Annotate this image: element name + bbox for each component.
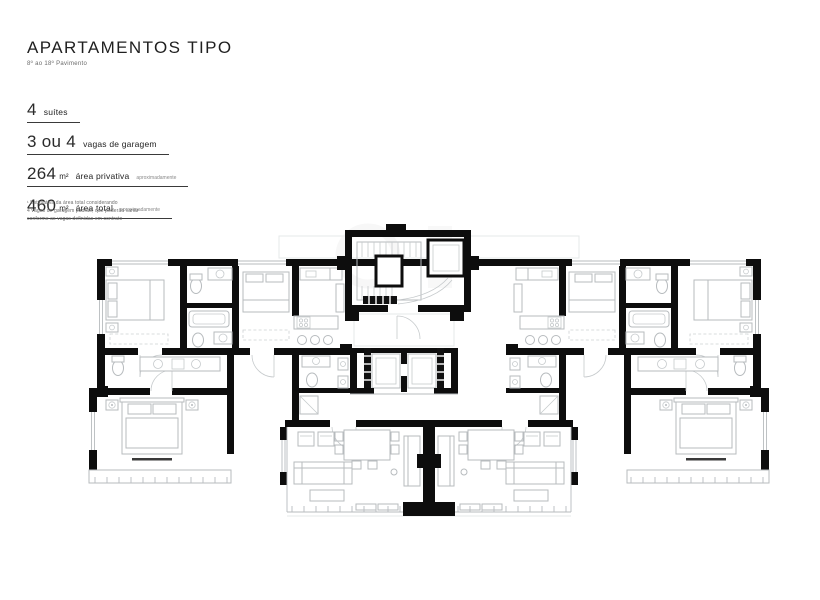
bench xyxy=(132,458,172,461)
bedroom-top-2 xyxy=(243,272,289,340)
toilet xyxy=(307,373,318,387)
elevator-lobby xyxy=(345,312,464,346)
toilet xyxy=(191,279,202,294)
service-bathroom xyxy=(300,356,348,414)
stair-core xyxy=(337,224,479,312)
apartment-right xyxy=(428,259,769,516)
toilet xyxy=(193,333,204,347)
bathroom-top-2 xyxy=(189,311,232,347)
armchair xyxy=(298,432,314,446)
living-dining xyxy=(294,430,420,510)
armchair xyxy=(318,432,334,446)
toilet xyxy=(113,361,124,376)
wardrobe xyxy=(243,330,289,340)
stool xyxy=(324,336,333,345)
wardrobe xyxy=(110,334,168,344)
bedroom-top-left xyxy=(106,267,168,344)
coffee-table xyxy=(310,490,344,501)
kitchen xyxy=(294,268,344,345)
bed xyxy=(122,402,182,454)
bathtub xyxy=(189,311,229,327)
stool xyxy=(311,336,320,345)
floor-lamp xyxy=(391,469,397,475)
bathroom-top-1 xyxy=(190,268,232,294)
page: APARTAMENTOS TIPO 8º ao 18º Pavimento 4 … xyxy=(0,0,820,600)
stair-flight-dark xyxy=(363,296,397,304)
elevator-bank xyxy=(350,348,458,394)
kitchen-island xyxy=(294,316,338,329)
master-suite xyxy=(106,398,198,461)
sofa xyxy=(294,462,352,484)
floor-plan xyxy=(0,0,820,600)
dining-table xyxy=(344,430,390,460)
terrace xyxy=(89,470,231,483)
master-bathroom xyxy=(112,356,220,376)
bed xyxy=(106,280,164,320)
stair-eye xyxy=(376,256,402,286)
stool xyxy=(298,336,307,345)
